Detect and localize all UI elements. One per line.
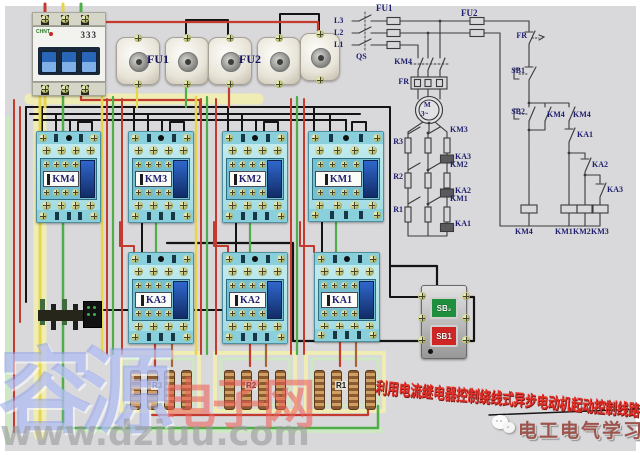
resistor-cylinder xyxy=(147,370,158,410)
terminal-slot xyxy=(171,212,175,220)
terminal-screw xyxy=(249,282,256,289)
device-face: KM1 xyxy=(312,158,380,200)
schematic-label: 3~ xyxy=(421,110,428,118)
stop-button-label: SB1 xyxy=(436,332,452,341)
fuse-top-screw xyxy=(275,34,283,42)
indicator-dot xyxy=(343,135,349,141)
terminal-screw xyxy=(351,310,358,317)
terminal-screw xyxy=(333,146,342,155)
resistor-cylinder xyxy=(314,370,325,410)
schematic-label: KA1 xyxy=(577,130,593,139)
terminal-screw xyxy=(351,282,358,289)
fuse-top-screw xyxy=(316,30,324,38)
terminal-screw xyxy=(183,255,191,263)
terminal-screw xyxy=(62,161,69,168)
terminal-slot xyxy=(345,331,349,339)
terminal-screw xyxy=(353,161,360,168)
schematic-label: L3 xyxy=(334,16,343,25)
terminal-slot xyxy=(79,134,83,142)
breaker-marking: 333 xyxy=(81,30,98,40)
resistor-cylinder xyxy=(130,370,141,410)
terminal-screw xyxy=(258,201,267,210)
pushbutton-station: SB₂ SB1 xyxy=(421,285,467,359)
terminal-screw xyxy=(243,201,252,210)
terminal-screw xyxy=(317,189,324,196)
indicator-dot xyxy=(158,135,164,141)
terminal-screw xyxy=(228,201,237,210)
terminal-slot xyxy=(359,134,363,142)
terminal-screw xyxy=(225,255,233,263)
terminal-screw xyxy=(277,255,285,263)
device-bottom-terminals xyxy=(129,331,193,343)
fuse-bottom-screw xyxy=(226,80,234,88)
terminal-slot xyxy=(172,134,176,142)
contactor-km1: KM1 xyxy=(308,131,384,222)
terminal-screw xyxy=(258,146,267,155)
terminal-screw xyxy=(90,212,98,220)
terminal-slot xyxy=(265,333,269,341)
terminal-screw xyxy=(179,322,188,331)
schematic-label: SB2 xyxy=(499,107,525,116)
terminal-screw xyxy=(86,201,95,210)
terminal-screw xyxy=(57,146,66,155)
resistor-label: R2 xyxy=(245,381,257,390)
schematic-label: SB1 xyxy=(501,66,525,75)
device-top-terminals xyxy=(223,253,287,265)
terminal-screw xyxy=(145,189,152,196)
terminal-screw xyxy=(277,333,285,341)
terminal-slot xyxy=(253,212,257,220)
device-core-window xyxy=(173,160,188,198)
device-face: KM3 xyxy=(132,158,190,200)
terminal-screw xyxy=(350,146,359,155)
fuse xyxy=(165,37,209,85)
mounting-dot xyxy=(428,349,433,354)
schematic-label: KM3 xyxy=(450,125,468,134)
terminal-screw xyxy=(320,267,329,276)
relay-ka1: KA1 xyxy=(314,252,380,342)
breaker-brand: CHNT xyxy=(36,29,50,35)
terminal-screw xyxy=(62,189,69,196)
schematic-label: KM2 xyxy=(450,160,468,169)
device-nameplate: KM4 xyxy=(43,171,79,187)
device-bottom-terminals xyxy=(37,210,100,222)
stop-button: SB1 xyxy=(430,325,458,347)
device-core-window xyxy=(359,281,374,319)
wiring-diagram-page: { "watermarks": { "brand_cn_big": "容源", … xyxy=(0,0,640,455)
terminal-screw xyxy=(131,333,139,341)
device-bottom-terminals xyxy=(129,210,193,222)
schematic-label: R2 xyxy=(389,172,403,181)
terminal-screw xyxy=(86,146,95,155)
terminal-screw xyxy=(229,310,236,317)
terminal-screw xyxy=(341,189,348,196)
terminal-screw xyxy=(311,211,319,219)
terminal-screw xyxy=(273,267,282,276)
schematic-label: KA2 xyxy=(592,160,608,169)
terminal-screw xyxy=(258,267,267,276)
fuse-group-label-fu2: FU2 xyxy=(239,52,261,67)
breaker-body: CHNT 333 xyxy=(32,26,106,82)
schematic-label: KM1 xyxy=(450,194,468,203)
terminal-screw xyxy=(350,267,359,276)
indicator-dot xyxy=(158,256,164,262)
terminal-slot xyxy=(159,212,163,220)
terminal-slot xyxy=(241,212,245,220)
terminal-slot xyxy=(78,212,82,220)
terminal-screw xyxy=(225,134,233,142)
terminal-screw xyxy=(259,189,266,196)
terminal-screw xyxy=(317,255,325,263)
terminal-screw xyxy=(135,161,142,168)
relay-ka2: KA2 xyxy=(222,252,288,344)
terminal-screw xyxy=(134,322,143,331)
device-bottom-terminals xyxy=(309,209,383,221)
terminal-screw xyxy=(229,189,236,196)
terminal-slot xyxy=(329,134,333,142)
terminal-screw xyxy=(259,282,266,289)
schematic-label: L2 xyxy=(334,28,343,37)
terminal-screw xyxy=(321,310,328,317)
terminal-slot xyxy=(333,255,337,263)
terminal-screw xyxy=(71,146,80,155)
terminal-screw xyxy=(155,189,162,196)
terminal-screw xyxy=(57,201,66,210)
device-top-terminals xyxy=(309,132,383,144)
terminal-block xyxy=(38,299,100,333)
terminal-screw xyxy=(43,189,50,196)
terminal-screw xyxy=(149,201,158,210)
terminal-screw xyxy=(329,161,336,168)
terminal-screw xyxy=(317,331,325,339)
terminal-slot xyxy=(55,212,59,220)
terminal-screw xyxy=(183,212,191,220)
device-label: KM4 xyxy=(47,174,74,185)
terminal-screw xyxy=(53,161,60,168)
terminal-screw xyxy=(249,310,256,317)
device-core-window xyxy=(80,160,95,198)
terminal-screw xyxy=(229,282,236,289)
device-nameplate: KM3 xyxy=(135,171,172,187)
terminal-screw xyxy=(149,146,158,155)
schematic-label: FU2 xyxy=(461,8,478,18)
terminal-screw xyxy=(228,322,237,331)
terminal-screw xyxy=(179,267,188,276)
fuse-bottom-screw xyxy=(134,80,142,88)
terminal-screw xyxy=(90,134,98,142)
fuse-top-screw xyxy=(226,34,234,42)
terminal-slot xyxy=(241,333,245,341)
terminal-slot xyxy=(171,333,175,341)
start-button-label: SB₂ xyxy=(437,304,452,313)
indicator-dot xyxy=(252,135,258,141)
terminal-screw xyxy=(155,161,162,168)
terminal-slot xyxy=(357,331,361,339)
breaker-top-terminals xyxy=(32,12,106,26)
device-nameplate: KA2 xyxy=(229,292,266,308)
terminal-screw xyxy=(239,189,246,196)
footer-brand: 电工电气学习 xyxy=(518,416,640,443)
terminal-slot xyxy=(266,134,270,142)
device-face: KM4 xyxy=(40,158,97,200)
contactor-km3: KM3 xyxy=(128,131,194,223)
device-top-terminals xyxy=(223,132,287,144)
schematic-label: KM4 xyxy=(390,57,412,66)
schematic-label: FR xyxy=(393,77,409,86)
terminal-slot xyxy=(266,255,270,263)
terminal-screw xyxy=(273,146,282,155)
terminal-screw xyxy=(39,212,47,220)
relay-ka3: KA3 xyxy=(128,252,194,344)
terminal-screw xyxy=(149,322,158,331)
fuse-cap xyxy=(270,52,290,72)
terminal-screw xyxy=(72,161,79,168)
terminal-screw xyxy=(243,322,252,331)
terminal-screw xyxy=(228,267,237,276)
terminal-screw xyxy=(225,212,233,220)
terminal-screw xyxy=(341,282,348,289)
resistor-cylinder xyxy=(331,370,342,410)
terminal-block-cover xyxy=(83,301,102,328)
device-face: KA3 xyxy=(132,279,190,321)
terminal-screw xyxy=(249,161,256,168)
terminal-screw xyxy=(228,146,237,155)
device-core-window xyxy=(267,160,282,198)
terminal-screw xyxy=(239,161,246,168)
device-bottom-terminals xyxy=(315,329,379,341)
indicator-dot xyxy=(344,256,350,262)
terminal-slot xyxy=(147,212,151,220)
resistor-cylinder xyxy=(241,370,252,410)
schematic-label: KA3 xyxy=(607,185,623,194)
terminal-screw xyxy=(239,282,246,289)
terminal-screw xyxy=(369,331,377,339)
terminal-screw xyxy=(277,134,285,142)
terminal-screw xyxy=(135,310,142,317)
breaker-toggle xyxy=(81,51,97,73)
device-label: KA2 xyxy=(235,295,260,306)
terminal-screw xyxy=(317,161,324,168)
terminal-screw xyxy=(165,161,172,168)
terminal-slot xyxy=(333,331,337,339)
terminal-screw xyxy=(135,189,142,196)
terminal-screw xyxy=(145,282,152,289)
schematic-label: KM4 xyxy=(547,110,565,119)
resistor-cylinder xyxy=(224,370,235,410)
terminal-screw xyxy=(239,310,246,317)
device-bottom-terminals xyxy=(223,210,287,222)
terminal-screw xyxy=(315,146,324,155)
terminal-slot xyxy=(253,333,257,341)
terminal-screw xyxy=(365,267,374,276)
terminal-screw xyxy=(183,333,191,341)
terminal-slot xyxy=(241,134,245,142)
terminal-screw xyxy=(134,146,143,155)
terminal-screw xyxy=(225,333,233,341)
fuse-cap xyxy=(178,52,198,72)
indicator-dot xyxy=(66,135,72,141)
terminal-screw xyxy=(42,146,51,155)
terminal-screw xyxy=(311,134,319,142)
resistor-label: R1 xyxy=(335,381,347,390)
terminal-screw xyxy=(164,322,173,331)
device-core-window xyxy=(173,281,188,319)
terminal-screw xyxy=(183,134,191,142)
resistor-cylinder xyxy=(348,370,359,410)
fuse-bottom-screw xyxy=(275,80,283,88)
fuse-cap xyxy=(221,52,241,72)
device-face: KA1 xyxy=(318,279,376,321)
terminal-slot xyxy=(172,255,176,263)
device-label: KM2 xyxy=(234,174,261,185)
device-face: KA2 xyxy=(226,279,284,321)
resistor-cylinder xyxy=(365,370,376,410)
terminal-slot xyxy=(147,333,151,341)
terminal-screw xyxy=(131,212,139,220)
schematic-label: R1 xyxy=(389,205,403,214)
terminal-screw xyxy=(165,189,172,196)
terminal-screw xyxy=(259,161,266,168)
terminal-screw xyxy=(164,201,173,210)
terminal-screw xyxy=(42,201,51,210)
circuit-breaker: CHNT 333 xyxy=(32,12,106,96)
breaker-indicator-dot xyxy=(49,32,53,36)
wechat-icon xyxy=(492,413,520,439)
fuse-cap xyxy=(129,52,149,72)
schematic-label: KM2 xyxy=(573,227,591,236)
fuse-top-screw xyxy=(183,34,191,42)
terminal-slot xyxy=(241,255,245,263)
terminal-screw xyxy=(331,310,338,317)
terminal-slot xyxy=(359,211,363,219)
terminal-slot xyxy=(67,212,71,220)
terminal-screw xyxy=(229,161,236,168)
device-top-terminals xyxy=(37,132,100,144)
terminal-screw xyxy=(243,267,252,276)
device-core-window xyxy=(267,281,282,319)
device-label: KA1 xyxy=(327,295,352,306)
terminal-screw xyxy=(164,267,173,276)
device-core-window xyxy=(363,160,378,198)
terminal-screw xyxy=(43,161,50,168)
schematic-label: KM1 xyxy=(555,227,573,236)
terminal-screw xyxy=(373,134,381,142)
schematic-label: L1 xyxy=(334,40,343,49)
terminal-screw xyxy=(164,146,173,155)
terminal-screw xyxy=(145,161,152,168)
resistor-cylinder xyxy=(258,370,269,410)
fuse xyxy=(257,37,301,85)
start-button: SB₂ xyxy=(430,297,458,319)
schematic-label: KM4 xyxy=(515,227,533,236)
device-nameplate: KM2 xyxy=(229,171,266,187)
terminal-screw xyxy=(273,322,282,331)
terminal-screw xyxy=(72,189,79,196)
schematic-label: R3 xyxy=(389,137,403,146)
terminal-screw xyxy=(369,255,377,263)
terminal-slot xyxy=(344,211,348,219)
terminal-screw xyxy=(39,134,47,142)
terminal-screw xyxy=(155,282,162,289)
resistor-bank-r1: R1 xyxy=(312,366,380,414)
terminal-screw xyxy=(134,201,143,210)
resistor-bank-r2: R2 xyxy=(222,366,290,414)
terminal-screw xyxy=(329,189,336,196)
terminal-screw xyxy=(131,134,139,142)
device-nameplate: KA1 xyxy=(321,292,358,308)
schematic-label: FR xyxy=(509,31,527,40)
resistor-label: R3 xyxy=(151,381,163,390)
fuse-bottom-screw xyxy=(316,76,324,84)
terminal-screw xyxy=(134,267,143,276)
terminal-slot xyxy=(147,255,151,263)
terminal-screw xyxy=(155,310,162,317)
contactor-km4: KM4 xyxy=(36,131,101,223)
breaker-bottom-terminals xyxy=(32,82,106,96)
indicator-dot xyxy=(252,256,258,262)
terminal-screw xyxy=(135,282,142,289)
schematic-label: KA1 xyxy=(455,219,471,228)
schematic-label: KM4 xyxy=(573,110,591,119)
terminal-screw xyxy=(373,211,381,219)
terminal-screw xyxy=(335,267,344,276)
schematic-label: KM3 xyxy=(591,227,609,236)
device-label: KM3 xyxy=(140,174,167,185)
terminal-screw xyxy=(273,201,282,210)
schematic-label: QS xyxy=(356,52,367,61)
breaker-toggle xyxy=(61,51,77,73)
terminal-screw xyxy=(53,189,60,196)
resistor-cylinder xyxy=(181,370,192,410)
contactor-km2: KM2 xyxy=(222,131,288,223)
device-nameplate: KA3 xyxy=(135,292,172,308)
fuse-bottom-screw xyxy=(183,80,191,88)
resistor-bank-r3: R3 xyxy=(128,366,196,414)
device-nameplate: KM1 xyxy=(315,171,362,187)
resistor-cylinder xyxy=(275,370,286,410)
terminal-screw xyxy=(71,201,80,210)
device-top-terminals xyxy=(315,253,379,265)
terminal-screw xyxy=(179,146,188,155)
schematic-label: M xyxy=(424,101,431,109)
terminal-screw xyxy=(179,201,188,210)
schematic-label: FU1 xyxy=(376,3,393,13)
fuse-top-screw xyxy=(134,34,142,42)
terminal-slot xyxy=(159,333,163,341)
terminal-screw xyxy=(165,282,172,289)
device-bottom-terminals xyxy=(223,331,287,343)
fuse-cap xyxy=(311,48,331,68)
fuse-group-label-fu1: FU1 xyxy=(147,52,169,67)
terminal-slot xyxy=(358,255,362,263)
terminal-screw xyxy=(341,310,348,317)
terminal-screw xyxy=(368,146,377,155)
device-label: KM1 xyxy=(325,174,352,185)
breaker-toggle-recess xyxy=(38,47,100,75)
device-top-terminals xyxy=(129,253,193,265)
device-top-terminals xyxy=(129,132,193,144)
terminal-slot xyxy=(147,134,151,142)
terminal-slot xyxy=(330,211,334,219)
terminal-screw xyxy=(321,282,328,289)
terminal-screw xyxy=(249,189,256,196)
terminal-screw xyxy=(331,282,338,289)
terminal-slot xyxy=(265,212,269,220)
terminal-slot xyxy=(54,134,58,142)
breaker-toggle xyxy=(41,51,57,73)
terminal-screw xyxy=(277,212,285,220)
device-label: KA3 xyxy=(141,295,166,306)
